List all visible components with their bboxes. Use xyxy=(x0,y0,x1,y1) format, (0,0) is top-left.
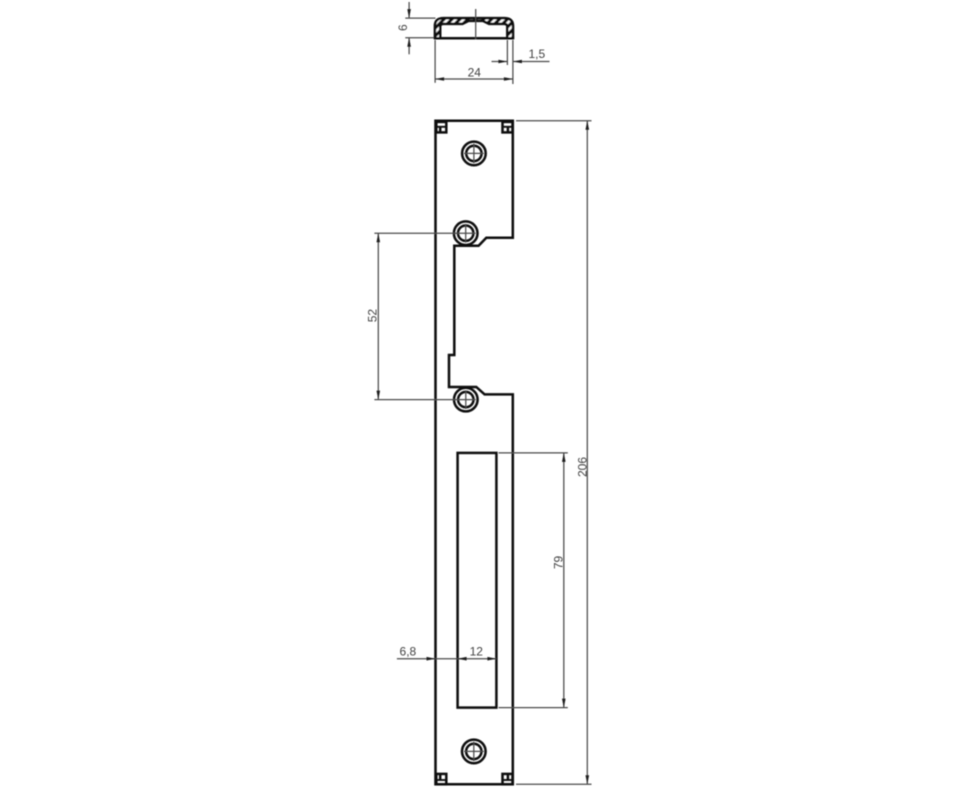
svg-text:206: 206 xyxy=(575,457,589,477)
svg-text:52: 52 xyxy=(365,309,379,323)
svg-text:6,8: 6,8 xyxy=(400,645,417,659)
svg-text:6: 6 xyxy=(396,24,410,31)
svg-text:12: 12 xyxy=(470,645,484,659)
svg-text:24: 24 xyxy=(468,65,482,79)
svg-text:79: 79 xyxy=(551,556,565,570)
svg-text:1,5: 1,5 xyxy=(528,47,545,61)
